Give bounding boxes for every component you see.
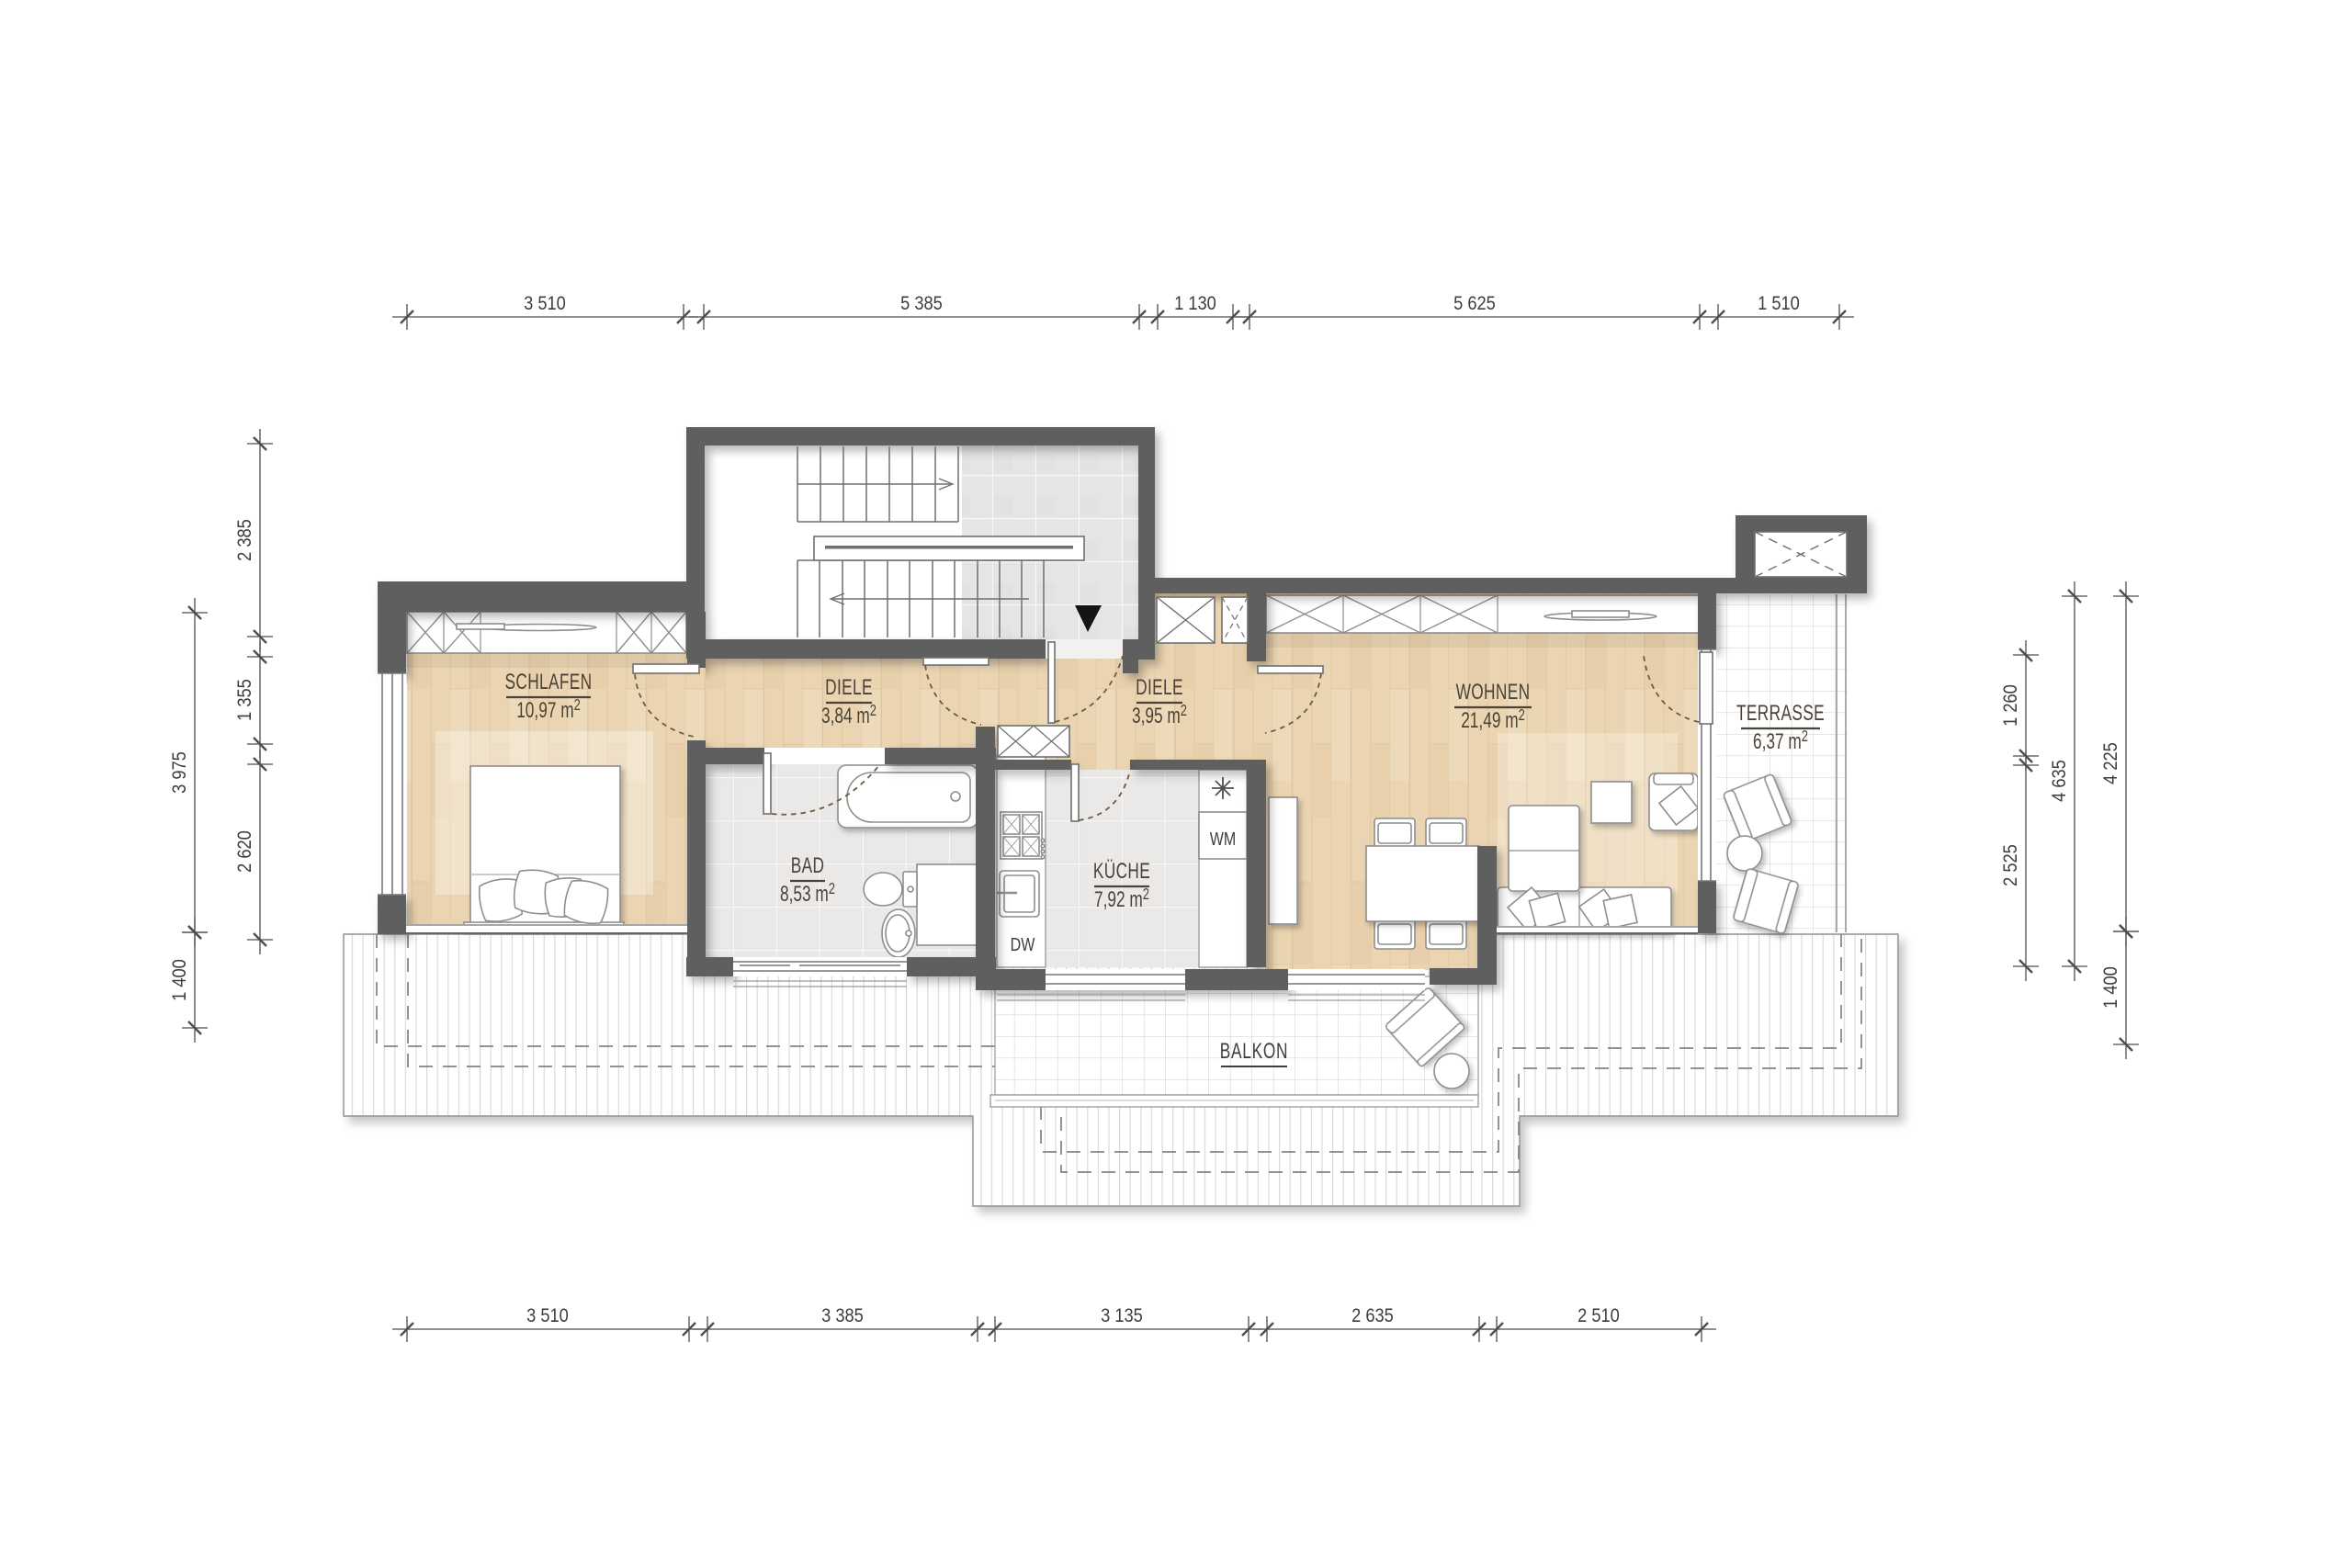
svg-text:BALKON: BALKON	[1220, 1039, 1288, 1063]
svg-text:5 625: 5 625	[1453, 293, 1496, 315]
svg-text:21,49 m2: 21,49 m2	[1461, 706, 1525, 733]
svg-text:DIELE: DIELE	[1136, 675, 1183, 699]
svg-text:DW: DW	[1011, 934, 1035, 954]
svg-text:2 635: 2 635	[1351, 1305, 1394, 1327]
svg-text:3,84 m2: 3,84 m2	[821, 702, 876, 728]
svg-text:3 510: 3 510	[524, 293, 566, 315]
svg-text:1 400: 1 400	[2100, 966, 2122, 1009]
svg-text:3 135: 3 135	[1101, 1305, 1143, 1327]
svg-text:1 130: 1 130	[1174, 293, 1216, 315]
svg-text:2 525: 2 525	[2000, 844, 2022, 886]
svg-text:8,53 m2: 8,53 m2	[780, 880, 835, 907]
svg-text:SCHLAFEN: SCHLAFEN	[504, 670, 592, 694]
svg-text:TERRASSE: TERRASSE	[1736, 701, 1825, 725]
svg-text:WOHNEN: WOHNEN	[1456, 680, 1531, 704]
svg-text:1 510: 1 510	[1758, 293, 1800, 315]
svg-text:3 510: 3 510	[526, 1305, 569, 1327]
svg-text:3 975: 3 975	[169, 751, 191, 794]
svg-text:1 355: 1 355	[234, 679, 256, 721]
svg-text:3,95 m2: 3,95 m2	[1132, 702, 1187, 728]
svg-text:1 260: 1 260	[2000, 684, 2022, 727]
svg-text:WM: WM	[1210, 829, 1236, 849]
svg-text:1 400: 1 400	[169, 959, 191, 1001]
svg-text:DIELE: DIELE	[825, 675, 873, 699]
svg-text:2 510: 2 510	[1577, 1305, 1620, 1327]
svg-text:BAD: BAD	[791, 853, 825, 877]
svg-text:2 385: 2 385	[234, 519, 256, 561]
svg-text:6,37 m2: 6,37 m2	[1753, 728, 1808, 754]
svg-text:5 385: 5 385	[900, 293, 943, 315]
svg-text:4 225: 4 225	[2100, 742, 2122, 784]
svg-text:10,97 m2: 10,97 m2	[516, 696, 581, 723]
svg-text:KÜCHE: KÜCHE	[1093, 859, 1150, 883]
svg-text:2 620: 2 620	[234, 830, 256, 873]
svg-text:3 385: 3 385	[821, 1305, 864, 1327]
svg-text:7,92 m2: 7,92 m2	[1094, 886, 1149, 912]
svg-text:4 635: 4 635	[2049, 760, 2071, 802]
